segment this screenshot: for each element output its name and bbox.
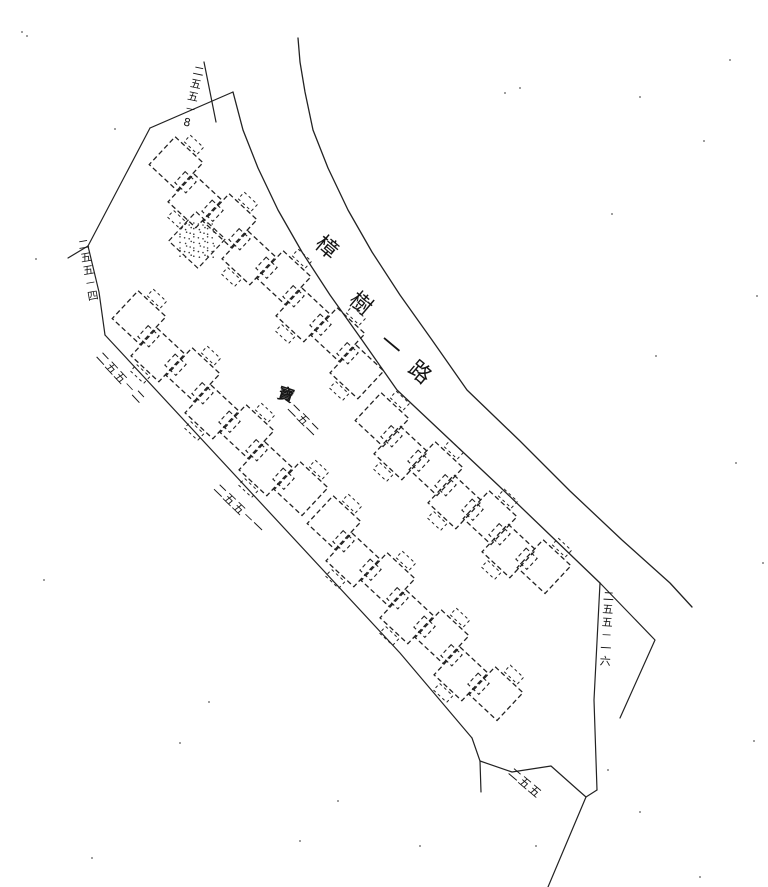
stipple-dot: [179, 255, 181, 257]
boundary-bottom-exit: [548, 797, 586, 887]
stipple-dot: [211, 237, 213, 239]
stipple-dot: [186, 245, 188, 247]
boundary-west-edge: [88, 128, 150, 246]
scan-speck: [208, 701, 210, 703]
scan-speck: [21, 31, 23, 33]
stipple-dot: [213, 245, 215, 247]
building-balcony: [330, 381, 349, 400]
scan-speck: [699, 876, 701, 878]
boundary-top-spur: [204, 62, 216, 122]
stipple-dot: [193, 247, 195, 249]
scan-speck: [504, 92, 506, 94]
scan-speck: [299, 840, 301, 842]
building-balcony: [342, 494, 361, 513]
scan-speck: [639, 811, 641, 813]
building-block: [482, 524, 536, 578]
building-balcony: [396, 551, 415, 570]
building-balcony: [239, 478, 258, 497]
stipple-dot: [207, 233, 209, 235]
building-balcony: [552, 538, 571, 557]
scan-speck: [91, 857, 93, 859]
stipple-dot: [179, 222, 181, 224]
stipple-dot: [184, 251, 186, 253]
stipple-dot: [207, 228, 209, 230]
stipple-dot: [200, 231, 202, 233]
scan-speck: [607, 769, 609, 771]
stipple-dot: [193, 250, 195, 252]
building-balcony: [201, 346, 220, 365]
stipple-dot: [185, 229, 187, 231]
stipple-dot: [190, 254, 192, 256]
building-balcony: [434, 683, 453, 702]
stipple-dot: [179, 233, 181, 235]
stipple-dot: [207, 255, 209, 257]
stipple-dot: [211, 223, 213, 225]
scan-speck: [703, 140, 705, 142]
scan-speck: [535, 845, 537, 847]
scan-speck: [43, 579, 45, 581]
cadastral-map-canvas: 二五五－8二五五－四二五五－二二五五－一二五五－一六二五五二五二寶樟樹一路: [0, 0, 768, 887]
stipple-dot: [185, 243, 187, 245]
scan-speck: [639, 96, 641, 98]
scan-speck: [35, 258, 37, 260]
building-balcony: [238, 192, 257, 211]
stipple-dot: [179, 250, 181, 252]
stipple-dot: [198, 251, 200, 253]
building-balcony: [428, 511, 447, 530]
scan-speck: [735, 462, 737, 464]
building-balcony: [374, 462, 393, 481]
scan-speck: [114, 128, 116, 130]
stipple-dot: [193, 228, 195, 230]
scan-speck: [26, 35, 28, 37]
road-inner-edge: [233, 92, 600, 583]
stipple-dot: [188, 238, 190, 240]
stipple-dot: [179, 242, 181, 244]
stipple-dot: [193, 233, 195, 235]
map-drawing: [0, 0, 768, 887]
stipple-dot: [200, 245, 202, 247]
stipple-dot: [204, 254, 206, 256]
building-balcony: [168, 210, 187, 229]
stipple-dot: [207, 222, 209, 224]
building-balcony: [276, 324, 295, 343]
stipple-dot: [193, 242, 195, 244]
stipple-dot: [189, 232, 191, 234]
stipple-dot: [190, 227, 192, 229]
building-balcony: [309, 460, 328, 479]
stipple-dot: [199, 243, 201, 245]
stipple-dot: [198, 237, 200, 239]
building-block: [428, 475, 482, 529]
scan-speck: [729, 59, 731, 61]
scan-speck: [179, 742, 181, 744]
scan-speck: [611, 213, 613, 215]
stipple-dot: [184, 237, 186, 239]
boundary-east-edge: [594, 583, 600, 790]
stipple-dot: [188, 224, 190, 226]
stipple-dot: [202, 252, 204, 254]
stipple-dot: [185, 256, 187, 258]
stipple-dot: [202, 224, 204, 226]
stipple-dot: [204, 241, 206, 243]
building-balcony: [482, 560, 501, 579]
stipple-dot: [190, 241, 192, 243]
building-stipple-outline: [169, 212, 226, 269]
building-balcony: [222, 267, 241, 286]
boundary-bottom-spur: [480, 761, 481, 792]
scan-speck: [655, 355, 657, 357]
stipple-dot: [211, 251, 213, 253]
stipple-dot: [207, 250, 209, 252]
stipple-dot: [207, 247, 209, 249]
scan-speck: [753, 740, 755, 742]
stipple-dot: [202, 238, 204, 240]
stipple-dot: [204, 227, 206, 229]
stipple-dot: [212, 256, 214, 258]
building-balcony: [326, 569, 345, 588]
building-balcony: [504, 665, 523, 684]
stipple-dot: [212, 243, 214, 245]
building-block: [330, 345, 384, 399]
stipple-dot: [193, 222, 195, 224]
scan-speck: [337, 800, 339, 802]
stipple-dot: [203, 246, 205, 248]
scan-speck: [762, 562, 764, 564]
stipple-dot: [193, 236, 195, 238]
stipple-dot: [207, 242, 209, 244]
building-balcony: [147, 289, 166, 308]
stipple-dot: [179, 236, 181, 238]
building-balcony: [450, 608, 469, 627]
building-block: [374, 426, 428, 480]
building-balcony: [255, 403, 274, 422]
stipple-dot: [193, 255, 195, 257]
stipple-dot: [186, 231, 188, 233]
scan-speck: [519, 87, 521, 89]
scan-speck: [756, 295, 758, 297]
stipple-dot: [207, 236, 209, 238]
stipple-dot: [198, 223, 200, 225]
building-balcony: [184, 135, 203, 154]
scan-speck: [419, 845, 421, 847]
stipple-dot: [199, 229, 201, 231]
building-balcony: [380, 626, 399, 645]
stipple-dot: [199, 256, 201, 258]
stipple-dot: [179, 247, 181, 249]
building-balcony: [498, 489, 517, 508]
building-balcony: [390, 391, 409, 410]
stipple-dot: [203, 232, 205, 234]
stipple-dot: [189, 246, 191, 248]
stipple-dot: [188, 252, 190, 254]
